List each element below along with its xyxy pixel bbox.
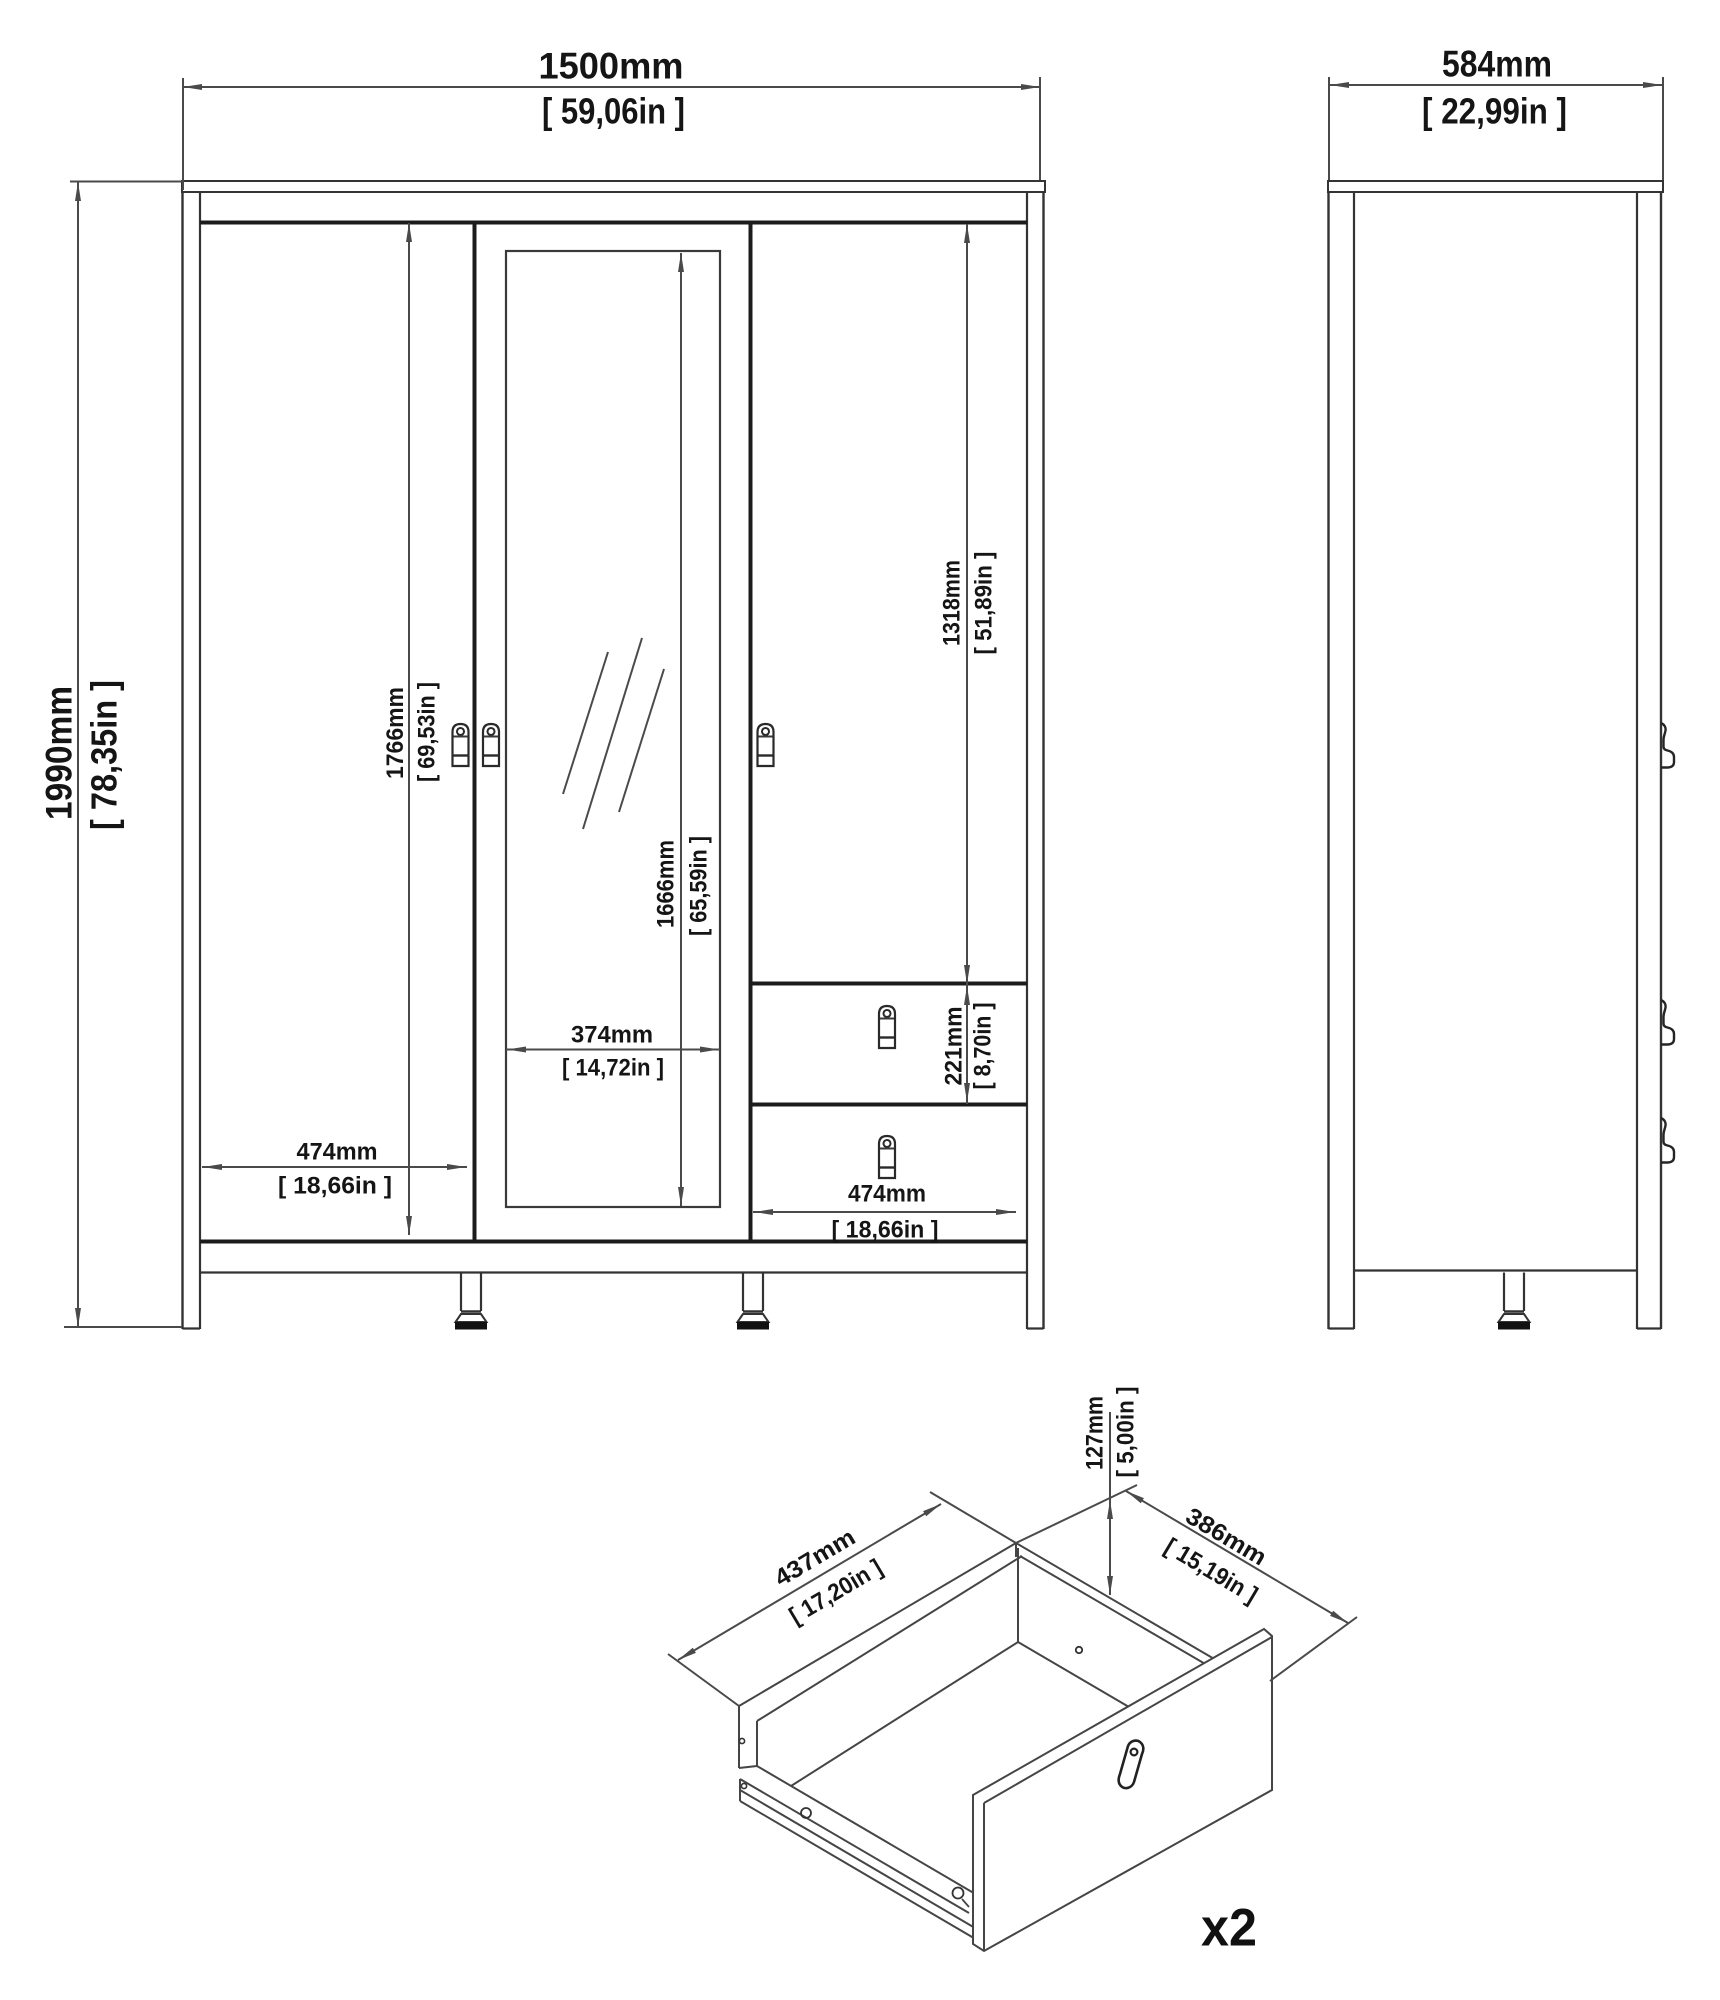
svg-text:[ 78,35in ]: [ 78,35in ] (84, 680, 125, 830)
svg-text:1318mm: 1318mm (939, 560, 966, 646)
svg-text:[ 65,59in ]: [ 65,59in ] (686, 836, 713, 936)
svg-text:x2: x2 (1201, 1899, 1257, 1958)
svg-text:[ 18,66in ]: [ 18,66in ] (832, 1217, 939, 1244)
svg-text:374mm: 374mm (571, 1022, 653, 1049)
svg-text:474mm: 474mm (848, 1181, 926, 1208)
svg-text:1766mm: 1766mm (382, 687, 409, 779)
svg-text:[ 51,89in ]: [ 51,89in ] (971, 552, 998, 655)
svg-text:1500mm: 1500mm (539, 46, 684, 87)
svg-text:[ 59,06in ]: [ 59,06in ] (542, 91, 685, 132)
svg-text:221mm: 221mm (941, 1007, 968, 1086)
svg-text:[ 22,99in ]: [ 22,99in ] (1422, 91, 1567, 132)
svg-text:1666mm: 1666mm (653, 840, 680, 928)
svg-text:127mm: 127mm (1082, 1396, 1109, 1470)
svg-text:[ 18,66in ]: [ 18,66in ] (278, 1173, 392, 1200)
svg-text:1990mm: 1990mm (39, 686, 80, 820)
svg-text:[ 69,53in ]: [ 69,53in ] (414, 682, 441, 782)
svg-text:584mm: 584mm (1442, 44, 1552, 85)
svg-text:[ 5,00in ]: [ 5,00in ] (1113, 1387, 1140, 1478)
svg-text:[ 14,72in ]: [ 14,72in ] (562, 1055, 664, 1082)
svg-text:474mm: 474mm (297, 1139, 378, 1166)
svg-text:[ 8,70in ]: [ 8,70in ] (970, 1003, 997, 1090)
